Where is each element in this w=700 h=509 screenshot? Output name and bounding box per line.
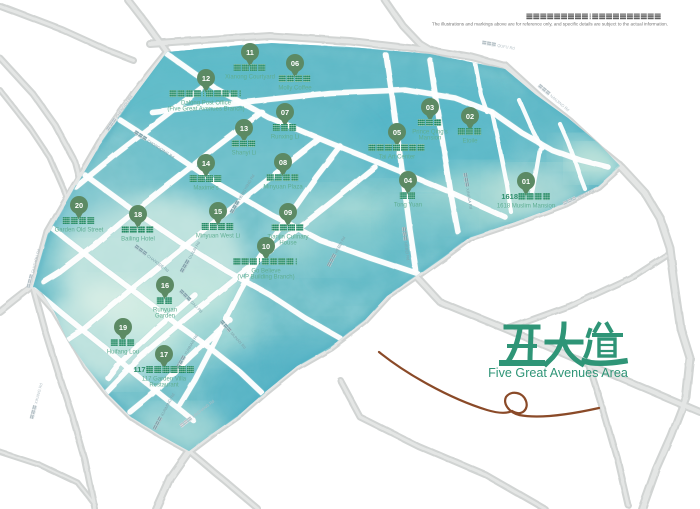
svg-text:09: 09 — [284, 208, 292, 217]
svg-text:Go Believe: Go Believe — [251, 269, 281, 275]
svg-text:Minyuan West Li: Minyuan West Li — [196, 234, 240, 240]
svg-text:03: 03 — [426, 103, 434, 112]
svg-text:Runxing Li: Runxing Li — [271, 135, 299, 141]
svg-text:04: 04 — [404, 176, 413, 185]
svg-text:12: 12 — [202, 74, 210, 83]
svg-text:Maxime's: Maxime's — [193, 186, 218, 192]
svg-text:Molly Coffee: Molly Coffee — [278, 86, 312, 92]
svg-text:01: 01 — [522, 177, 530, 186]
svg-text:Xianong Courtyard: Xianong Courtyard — [225, 75, 275, 81]
svg-text:Bailing Hotel: Bailing Hotel — [121, 237, 155, 243]
svg-text:Garden: Garden — [155, 314, 175, 320]
svg-text:Prince Qing's: Prince Qing's — [412, 130, 448, 136]
svg-text:Minyuan Plaza: Minyuan Plaza — [263, 185, 303, 191]
svg-text:07: 07 — [281, 108, 289, 117]
svg-text:Tai Art Center: Tai Art Center — [379, 155, 415, 161]
svg-text:13: 13 — [240, 124, 248, 133]
svg-text:14: 14 — [202, 159, 211, 168]
svg-text:08: 08 — [279, 158, 287, 167]
svg-text:(Five Great Avenues Branch): (Five Great Avenues Branch) — [167, 107, 244, 113]
svg-text:117 Garden Villa: 117 Garden Villa — [142, 377, 187, 383]
svg-text:Dalong Post Office: Dalong Post Office — [181, 101, 232, 107]
svg-text:20: 20 — [75, 201, 83, 210]
svg-text:Huifang Lou: Huifang Lou — [107, 350, 139, 356]
svg-text:06: 06 — [291, 59, 299, 68]
svg-text:Tianjin Culinary: Tianjin Culinary — [267, 235, 308, 241]
svg-text:02: 02 — [466, 112, 474, 121]
svg-text:The illustrations and markings: The illustrations and markings above are… — [432, 21, 668, 26]
svg-text:Garden Old Street: Garden Old Street — [55, 228, 104, 234]
svg-text:15: 15 — [214, 207, 222, 216]
svg-text:18: 18 — [134, 210, 142, 219]
svg-text:19: 19 — [119, 323, 127, 332]
svg-text:Runyuan: Runyuan — [153, 308, 177, 314]
svg-text:Mansion: Mansion — [419, 136, 442, 142]
svg-text:Five Great Avenues Area: Five Great Avenues Area — [488, 366, 628, 380]
svg-text:Tong Yuan: Tong Yuan — [394, 203, 422, 209]
svg-text:Restaurant: Restaurant — [149, 383, 179, 389]
svg-text:17: 17 — [160, 350, 168, 359]
svg-text:Shanyi Li: Shanyi Li — [232, 151, 257, 157]
svg-text:10: 10 — [262, 242, 270, 251]
svg-text:(VIP Building Branch): (VIP Building Branch) — [237, 275, 294, 281]
svg-text:11: 11 — [246, 48, 254, 57]
svg-text:1618: 1618 — [501, 192, 518, 201]
svg-text:05: 05 — [393, 128, 401, 137]
svg-text:16: 16 — [161, 281, 169, 290]
svg-text:Etoile: Etoile — [462, 139, 478, 145]
svg-text:117: 117 — [133, 365, 145, 374]
svg-text:House: House — [279, 241, 297, 247]
svg-text:1618 Muslim Mansion: 1618 Muslim Mansion — [497, 204, 555, 210]
